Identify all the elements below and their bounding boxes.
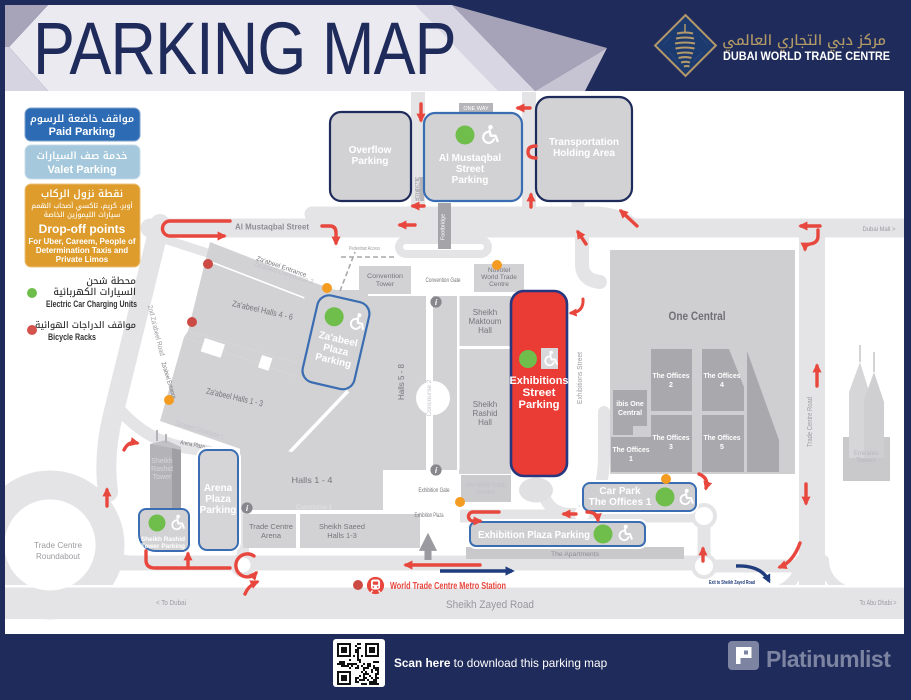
svg-text:Pedestrian Access: Pedestrian Access <box>349 246 380 252</box>
svg-text:Footbridge: Footbridge <box>441 214 447 240</box>
svg-text:One Central: One Central <box>669 309 726 323</box>
svg-text:To Abu Dhabi >: To Abu Dhabi > <box>860 598 897 607</box>
svg-text:Scan here to download this par: Scan here to download this parking map <box>394 656 608 670</box>
svg-text:Parking: Parking <box>452 175 489 186</box>
svg-text:Al Mustaqbal: Al Mustaqbal <box>439 153 501 164</box>
svg-text:Arena: Arena <box>204 483 233 494</box>
svg-text:< To Dubai: < To Dubai <box>156 598 186 607</box>
svg-text:Convention: Convention <box>367 273 403 280</box>
svg-text:Sheikh: Sheikh <box>473 308 497 317</box>
svg-text:Halls 1 - 4: Halls 1 - 4 <box>292 475 333 485</box>
svg-text:The Offices: The Offices <box>704 435 741 442</box>
svg-text:5: 5 <box>720 444 724 451</box>
svg-text:Rashid: Rashid <box>151 466 173 473</box>
svg-text:Tower Parking: Tower Parking <box>141 543 185 550</box>
svg-text:EXIT ONLY: EXIT ONLY <box>416 176 422 202</box>
svg-text:Plaza: Plaza <box>205 494 231 505</box>
svg-text:Convention Gate: Convention Gate <box>426 277 461 284</box>
svg-text:DUBAI WORLD TRADE CENTRE: DUBAI WORLD TRADE CENTRE <box>723 49 890 63</box>
svg-text:Bicycle Racks: Bicycle Racks <box>48 332 96 342</box>
svg-text:4: 4 <box>720 382 724 389</box>
svg-text:Transportation: Transportation <box>549 137 619 148</box>
svg-text:Arena: Arena <box>261 531 282 540</box>
svg-text:The Apartments: The Apartments <box>551 551 600 558</box>
svg-text:ONE WAY: ONE WAY <box>463 106 489 112</box>
svg-text:Dubai Mall >: Dubai Mall > <box>863 226 896 233</box>
svg-text:Private Limos: Private Limos <box>56 255 109 264</box>
svg-text:The Offices 1: The Offices 1 <box>589 497 652 508</box>
svg-text:Street: Street <box>456 164 485 175</box>
svg-text:The Offices: The Offices <box>653 373 690 380</box>
svg-text:Valet Parking: Valet Parking <box>47 164 116 176</box>
svg-text:Tower: Tower <box>153 474 172 481</box>
svg-text:The Offices: The Offices <box>704 373 741 380</box>
svg-text:Parking: Parking <box>352 156 389 167</box>
svg-text:Halls 1-3: Halls 1-3 <box>327 531 357 540</box>
svg-text:Car Park: Car Park <box>599 486 641 497</box>
svg-text:Central: Central <box>618 410 642 417</box>
svg-text:Trade Centre Road: Trade Centre Road <box>807 397 814 447</box>
svg-text:Hall: Hall <box>478 418 492 427</box>
svg-text:Tower: Tower <box>376 281 395 288</box>
svg-text:PARKING MAP: PARKING MAP <box>33 7 456 90</box>
svg-text:Exhibition Gate: Exhibition Gate <box>419 487 450 494</box>
svg-text:Towers: Towers <box>856 457 876 464</box>
svg-text:World Trade: World Trade <box>481 274 517 281</box>
svg-text:Halls 5 - 8: Halls 5 - 8 <box>396 364 406 400</box>
svg-text:World Trade Centre Metro Stati: World Trade Centre Metro Station <box>390 581 506 592</box>
svg-text:Ibis World Trade: Ibis World Trade <box>466 483 507 489</box>
svg-text:Sheikh Rashid: Sheikh Rashid <box>141 536 185 543</box>
svg-text:The Offices: The Offices <box>653 435 690 442</box>
svg-text:Street: Street <box>523 387 556 399</box>
svg-text:Platinumlist: Platinumlist <box>766 646 891 672</box>
svg-text:Exhibitions: Exhibitions <box>510 375 569 387</box>
svg-text:Overflow: Overflow <box>349 145 392 156</box>
svg-text:Emirates: Emirates <box>854 450 878 457</box>
svg-text:Parking: Parking <box>519 399 560 411</box>
svg-text:Sheikh Saeed: Sheikh Saeed <box>319 522 365 531</box>
svg-text:Rashid: Rashid <box>473 409 498 418</box>
svg-text:Exit to Sheikh Zayed Road: Exit to Sheikh Zayed Road <box>709 580 755 586</box>
svg-text:Hall: Hall <box>478 326 492 335</box>
svg-text:Concourse 1: Concourse 1 <box>296 504 333 511</box>
svg-text:For Uber, Careem, People of: For Uber, Careem, People of <box>28 237 135 246</box>
svg-text:Trade Centre: Trade Centre <box>249 522 293 531</box>
svg-text:Electric Car Charging Units: Electric Car Charging Units <box>46 299 137 309</box>
svg-text:Paid Parking: Paid Parking <box>49 126 116 138</box>
svg-text:3: 3 <box>669 444 673 451</box>
svg-text:The Offices: The Offices <box>613 447 650 454</box>
svg-text:Determination Taxis and: Determination Taxis and <box>36 246 128 255</box>
svg-text:Centre: Centre <box>477 490 496 496</box>
svg-text:Concourse 2: Concourse 2 <box>426 379 433 416</box>
svg-text:Parking: Parking <box>200 505 237 516</box>
svg-text:Sheikh Zayed Road: Sheikh Zayed Road <box>446 599 534 611</box>
svg-text:Exhibitions Street: Exhibitions Street <box>577 352 584 404</box>
svg-text:Roundabout: Roundabout <box>36 551 81 561</box>
svg-text:Trade Centre: Trade Centre <box>34 540 82 550</box>
svg-text:Drop-off points: Drop-off points <box>39 222 126 236</box>
svg-text:2: 2 <box>669 382 673 389</box>
svg-text:Centre: Centre <box>489 281 509 288</box>
svg-text:Exhibition Plaza Parking: Exhibition Plaza Parking <box>478 529 590 541</box>
svg-text:Sheikh: Sheikh <box>473 400 497 409</box>
svg-text:ibis One: ibis One <box>616 401 644 408</box>
svg-text:Maktoum: Maktoum <box>469 317 502 326</box>
svg-text:Al Mustaqbal Street: Al Mustaqbal Street <box>235 222 309 232</box>
svg-text:Holding Area: Holding Area <box>553 148 615 159</box>
svg-text:Sheikh: Sheikh <box>151 458 173 465</box>
svg-text:Exhibition Plaza: Exhibition Plaza <box>415 513 444 519</box>
svg-text:1: 1 <box>629 456 633 463</box>
